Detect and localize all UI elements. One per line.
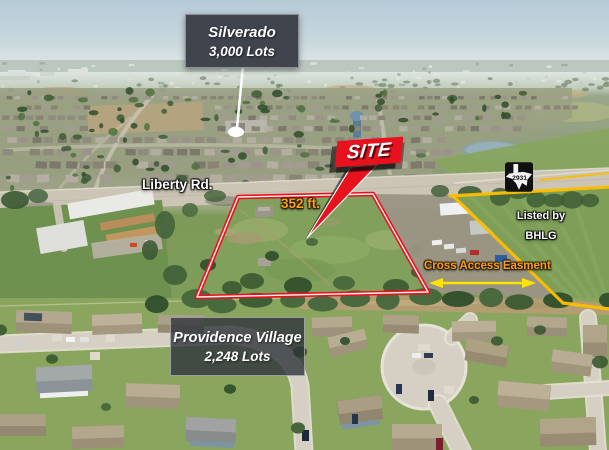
silverado-sign-name: Silverado bbox=[208, 24, 276, 41]
easement-arrow-right-head bbox=[522, 278, 536, 288]
silverado-pointer-line bbox=[237, 66, 243, 128]
providence-sign-lots: 2,248 Lots bbox=[204, 349, 270, 364]
easement-arrow-left-head bbox=[429, 278, 443, 288]
road-edge-line bbox=[540, 173, 609, 180]
site-banner-label: SITE bbox=[346, 139, 392, 164]
listed-by-block: Listed by BHLG bbox=[508, 210, 574, 242]
aerial-site-map: Silverado 3,000 Lots SITE Liberty Rd. 35… bbox=[0, 0, 609, 450]
silverado-pointer-dot bbox=[228, 127, 244, 137]
silverado-sign-lots: 3,000 Lots bbox=[209, 44, 275, 59]
liberty-road-label: Liberty Rd. bbox=[142, 177, 213, 192]
texas-road-sign: 2931 bbox=[505, 162, 533, 192]
easement-boundary-south bbox=[563, 303, 609, 309]
frontage-label: 352 ft. bbox=[281, 196, 320, 211]
broker-label: BHLG bbox=[508, 230, 574, 242]
silverado-sign: Silverado 3,000 Lots bbox=[185, 14, 299, 68]
cross-access-easement-label: Cross Access Easment bbox=[424, 260, 551, 272]
texas-sign-number: 2931 bbox=[512, 175, 527, 182]
providence-sign-name: Providence Village bbox=[173, 330, 301, 346]
listed-by-label: Listed by bbox=[508, 210, 574, 222]
site-banner: SITE bbox=[335, 137, 404, 168]
providence-village-sign: Providence Village 2,248 Lots bbox=[170, 317, 305, 376]
